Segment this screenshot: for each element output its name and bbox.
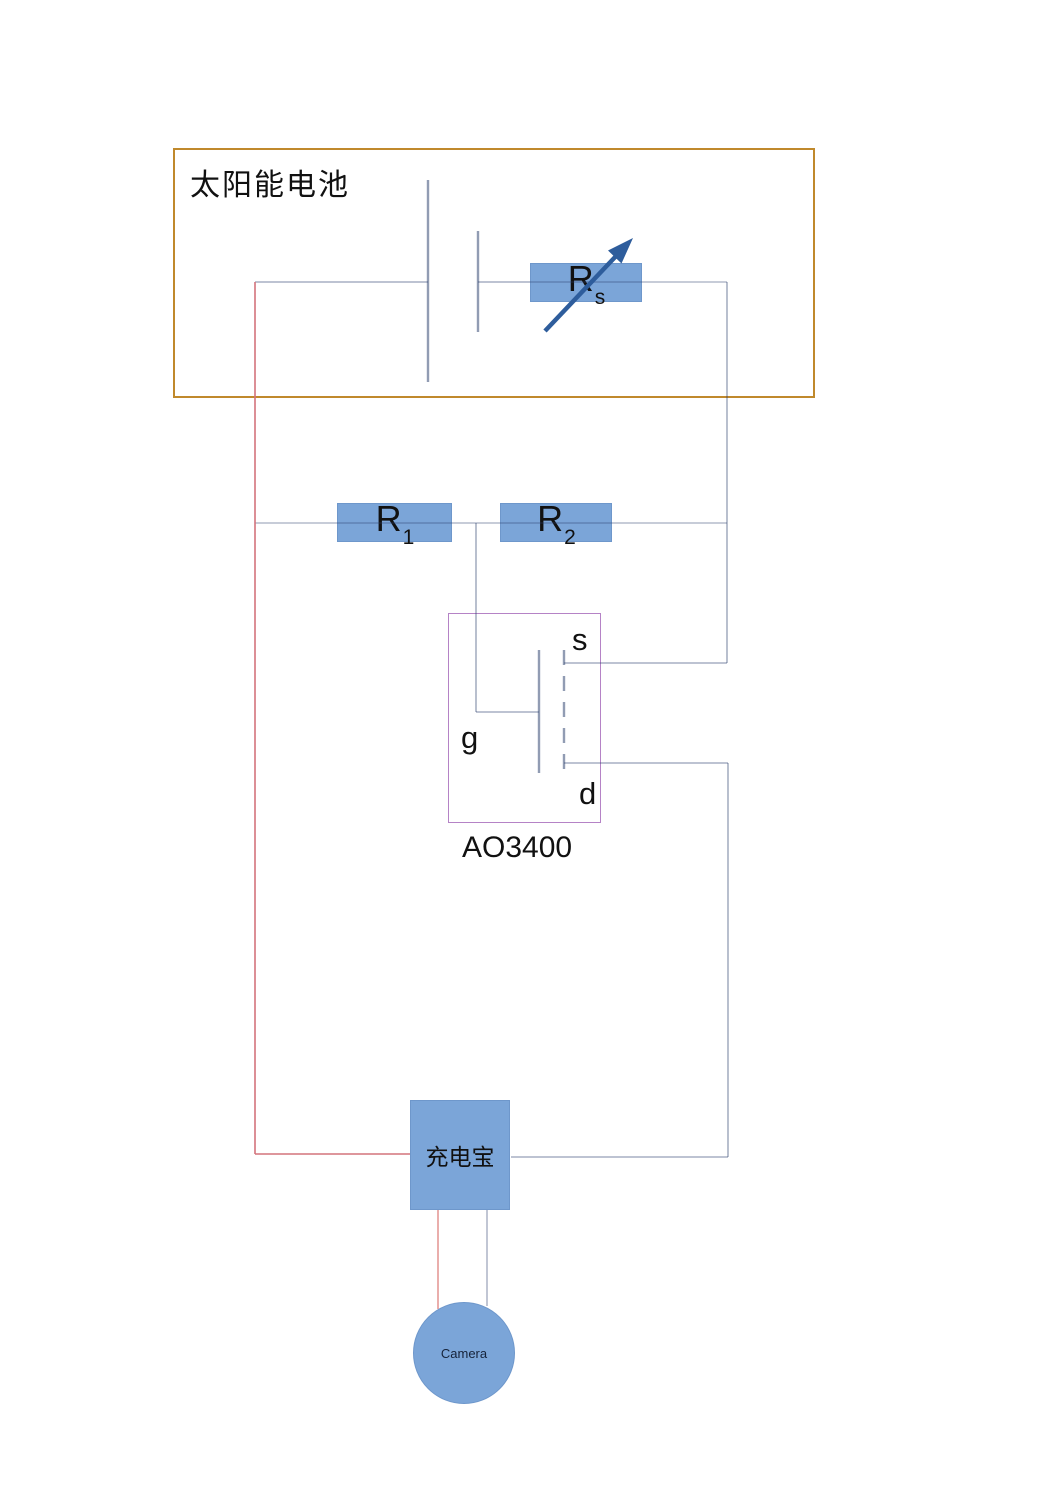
mosfet-drain-label: d [579, 778, 596, 809]
mosfet-source-label: s [572, 624, 588, 655]
powerbank-label: 充电宝 [426, 1138, 495, 1172]
camera-circle: Camera [413, 1302, 515, 1404]
diagram-canvas: 太阳能电池 Rs R1 R2 s g d AO3400 充电宝 Camera [0, 0, 1050, 1485]
resistor-r1-box: R1 [337, 503, 452, 542]
powerbank-box: 充电宝 [410, 1100, 510, 1210]
variable-resistor-label: Rs [568, 261, 605, 303]
mosfet-part-number-label: AO3400 [462, 833, 572, 863]
variable-resistor-box: Rs [530, 263, 642, 302]
resistor-r2-box: R2 [500, 503, 612, 542]
resistor-r1-label: R1 [376, 501, 414, 543]
solar-panel-label: 太阳能电池 [190, 160, 350, 204]
camera-label: Camera [441, 1346, 487, 1361]
resistor-r2-label: R2 [537, 501, 575, 543]
mosfet-gate-label: g [461, 722, 478, 753]
